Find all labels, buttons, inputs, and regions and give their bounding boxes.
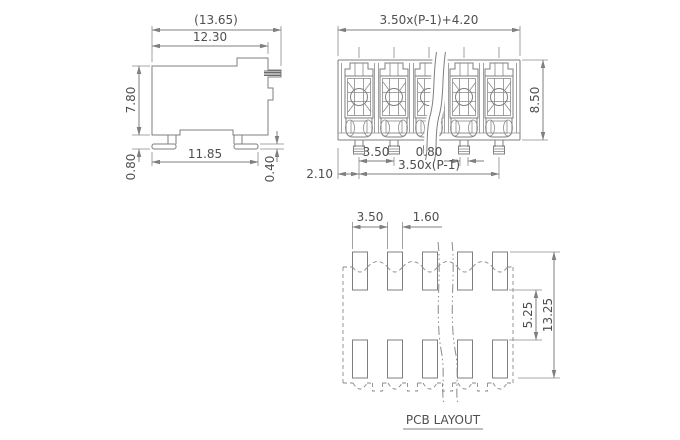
dim-pcb-pad-pitch: 3.50 (353, 210, 388, 249)
left-foot (152, 135, 176, 149)
pad (458, 252, 473, 290)
pad (458, 340, 473, 378)
dim-label-front-pitch: 3.50 (363, 145, 390, 159)
dim-side-body-width: 12.30 (152, 30, 268, 54)
terminal-unit-1 (345, 47, 373, 154)
dim-pcb-total-height: 13.25 (510, 252, 560, 378)
pad (353, 252, 368, 290)
front-view-break (426, 52, 446, 160)
right-foot (234, 135, 258, 149)
dim-label-front-pin-width: 0.80 (416, 145, 443, 159)
terminal-unit-4 (450, 47, 478, 154)
pcb-layout-title-text: PCB LAYOUT (406, 413, 481, 427)
dim-side-body-height: 7.80 (124, 66, 150, 135)
side-view-body-outline (152, 58, 281, 135)
terminal-unit-2 (380, 47, 408, 154)
pcb-layout-title: PCB LAYOUT (403, 413, 483, 429)
dim-label-side-body-width: 12.30 (193, 30, 227, 44)
dim-label-side-height: 7.80 (124, 87, 138, 114)
pad (423, 340, 438, 378)
terminal-unit-5 (485, 47, 513, 154)
dim-label-side-overall: (13.65) (194, 13, 238, 27)
pad (388, 340, 403, 378)
dim-label-front-pin-span: 3.50x(P-1) (398, 158, 460, 172)
technical-drawing: (13.65) 12.30 7.80 0.80 11.85 (0, 0, 680, 440)
side-view: (13.65) 12.30 7.80 0.80 11.85 (124, 13, 284, 182)
pad (423, 252, 438, 290)
dim-label-side-foot-thickness: 0.40 (263, 156, 277, 183)
dim-front-pin-span: 3.50x(P-1) (359, 157, 499, 179)
pad (493, 340, 508, 378)
front-view: 3.50x(P-1)+4.20 8.50 3.50 0.80 2 (306, 13, 548, 181)
pcb-component-outline (343, 262, 513, 392)
dim-label-side-foot-span: 11.85 (188, 147, 222, 161)
dim-pcb-row-gap: 5.25 (509, 290, 542, 340)
dim-label-front-height: 8.50 (528, 87, 542, 114)
dim-pcb-pad-width: 1.60 (403, 210, 443, 249)
pcb-pads (353, 252, 508, 378)
pad (388, 252, 403, 290)
pad (353, 340, 368, 378)
dim-label-pcb-pitch: 3.50 (357, 210, 384, 224)
dim-front-body-height: 8.50 (522, 60, 548, 140)
dim-side-standoff: 0.80 (124, 122, 150, 180)
dim-label-front-overall: 3.50x(P-1)+4.20 (380, 13, 479, 27)
pad (493, 252, 508, 290)
dim-label-front-end-margin: 2.10 (306, 167, 333, 181)
pcb-break-lines (438, 242, 458, 404)
dim-side-foot-thickness: 0.40 (260, 131, 284, 182)
dim-label-pcb-row-gap: 5.25 (521, 302, 535, 329)
drawing-sheet: (13.65) 12.30 7.80 0.80 11.85 (0, 0, 680, 440)
dim-label-pcb-pad-width: 1.60 (413, 210, 440, 224)
dim-front-end-margin: 2.10 (306, 148, 359, 181)
solder-tab-hatch (264, 71, 281, 76)
dim-label-pcb-total-height: 13.25 (541, 298, 555, 332)
dim-label-side-standoff: 0.80 (124, 154, 138, 181)
pcb-layout-view: 3.50 1.60 5.25 13.25 PCB LAYOUT (343, 210, 560, 429)
dim-side-foot-span: 11.85 (152, 147, 258, 166)
